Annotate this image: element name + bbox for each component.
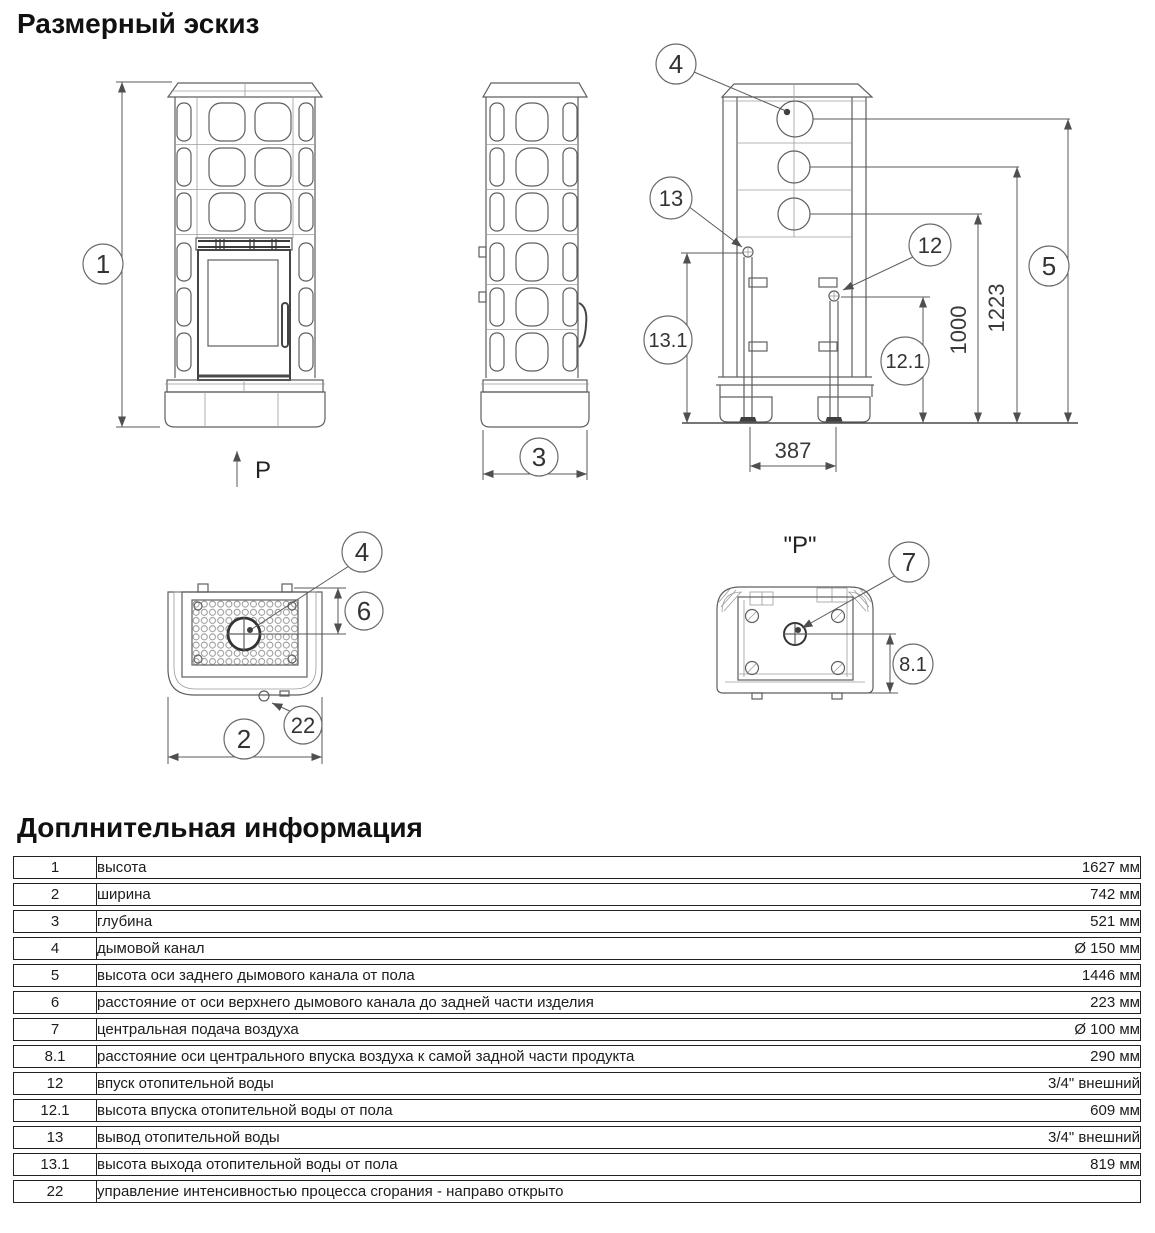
spec-desc: глубина bbox=[97, 910, 972, 933]
svg-text:7: 7 bbox=[902, 547, 916, 577]
table-row: 4дымовой каналØ 150 мм bbox=[13, 937, 1141, 960]
dim-depth: 3 bbox=[483, 430, 587, 480]
spec-value: 3/4" внешний bbox=[972, 1126, 1141, 1149]
side-tiles bbox=[490, 103, 577, 371]
spec-value: 609 мм bbox=[972, 1099, 1141, 1122]
balloon-7: 7 bbox=[889, 542, 929, 582]
balloon-22: 22 bbox=[284, 706, 322, 744]
table-row: 5высота оси заднего дымового канала от п… bbox=[13, 964, 1141, 987]
spec-value: 819 мм bbox=[972, 1153, 1141, 1176]
svg-text:4: 4 bbox=[669, 49, 683, 79]
svg-text:5: 5 bbox=[1042, 251, 1056, 281]
spec-value: 521 мм bbox=[972, 910, 1141, 933]
spec-desc: управление интенсивностью процесса сгора… bbox=[97, 1180, 972, 1203]
dim-5: 5 bbox=[1029, 119, 1069, 423]
table-row: 22управление интенсивностью процесса сго… bbox=[13, 1180, 1141, 1203]
spec-num: 12 bbox=[13, 1072, 97, 1095]
side-view: 3 bbox=[479, 83, 589, 480]
spec-num: 4 bbox=[13, 937, 97, 960]
balloon-12: 12 bbox=[909, 224, 951, 266]
spec-num: 7 bbox=[13, 1018, 97, 1041]
svg-text:22: 22 bbox=[291, 713, 315, 738]
dimensional-sketch: 1 P bbox=[0, 0, 1155, 800]
svg-text:2: 2 bbox=[237, 724, 251, 754]
door-glass bbox=[208, 260, 278, 346]
dim-8-1: 8.1 bbox=[807, 634, 933, 693]
svg-text:1223: 1223 bbox=[984, 284, 1009, 333]
table-row: 8.1расстояние оси центрального впуска во… bbox=[13, 1045, 1141, 1068]
spec-value: 290 мм bbox=[972, 1045, 1141, 1068]
balloon-1: 1 bbox=[83, 244, 123, 284]
balloon-8-1: 8.1 bbox=[893, 644, 933, 684]
table-row: 13вывод отопительной воды3/4" внешний bbox=[13, 1126, 1141, 1149]
svg-text:13: 13 bbox=[659, 186, 683, 211]
spec-desc: вывод отопительной воды bbox=[97, 1126, 972, 1149]
spec-num: 3 bbox=[13, 910, 97, 933]
door-handle bbox=[282, 303, 288, 347]
svg-text:12: 12 bbox=[918, 233, 942, 258]
dim-1223: 1223 bbox=[984, 167, 1017, 423]
wall-brackets bbox=[749, 278, 837, 351]
spec-desc: высота впуска отопительной воды от пола bbox=[97, 1099, 972, 1122]
spec-table: 1высота1627 мм 2ширина742 мм 3глубина521… bbox=[13, 852, 1141, 1207]
table-row: 13.1высота выхода отопительной воды от п… bbox=[13, 1153, 1141, 1176]
svg-text:1000: 1000 bbox=[946, 306, 971, 355]
spec-value: 3/4" внешний bbox=[972, 1072, 1141, 1095]
spec-num: 5 bbox=[13, 964, 97, 987]
balloon-12-1: 12.1 bbox=[881, 337, 929, 385]
spec-num: 6 bbox=[13, 991, 97, 1014]
spec-num: 1 bbox=[13, 856, 97, 879]
svg-text:12.1: 12.1 bbox=[886, 351, 925, 373]
balloon-5: 5 bbox=[1029, 246, 1069, 286]
central-air-inlet bbox=[783, 623, 807, 645]
stove-door bbox=[196, 238, 292, 380]
spec-value: 1446 мм bbox=[972, 964, 1141, 987]
table-row: 7центральная подача воздухаØ 100 мм bbox=[13, 1018, 1141, 1041]
balloon-4-rear: 4 bbox=[656, 44, 696, 84]
spec-desc: центральная подача воздуха bbox=[97, 1018, 972, 1041]
water-pipes bbox=[739, 257, 843, 423]
side-fitting-upper bbox=[479, 247, 486, 257]
water-outlet-fitting bbox=[742, 246, 754, 258]
spec-desc: расстояние оси центрального впуска возду… bbox=[97, 1045, 972, 1068]
balloon-13-1: 13.1 bbox=[644, 316, 692, 364]
info-title: Доплнительная информация bbox=[17, 812, 423, 844]
table-row: 6расстояние от оси верхнего дымового кан… bbox=[13, 991, 1141, 1014]
spec-value: 1627 мм bbox=[972, 856, 1141, 879]
balloon-6: 6 bbox=[345, 592, 383, 630]
svg-text:3: 3 bbox=[532, 442, 546, 472]
spec-num: 8.1 bbox=[13, 1045, 97, 1068]
spec-value: 742 мм bbox=[972, 883, 1141, 906]
dim-12-1: 12.1 bbox=[841, 297, 930, 423]
svg-text:13.1: 13.1 bbox=[649, 330, 688, 352]
spec-desc: расстояние от оси верхнего дымового кана… bbox=[97, 991, 972, 1014]
water-inlet-fitting bbox=[828, 290, 840, 302]
dim-height: 1 bbox=[83, 82, 172, 427]
balloon-13: 13 bbox=[650, 177, 692, 219]
balloon-3: 3 bbox=[520, 438, 558, 476]
front-view: 1 P bbox=[83, 82, 325, 487]
p-direction-arrow: P bbox=[237, 451, 271, 487]
spec-num: 22 bbox=[13, 1180, 97, 1203]
balloon-2: 2 bbox=[224, 719, 264, 759]
front-base bbox=[165, 380, 325, 427]
svg-text:4: 4 bbox=[355, 537, 369, 567]
table-row: 2ширина742 мм bbox=[13, 883, 1141, 906]
spec-desc: ширина bbox=[97, 883, 972, 906]
side-base bbox=[481, 380, 589, 427]
spec-desc: дымовой канал bbox=[97, 937, 972, 960]
top-view: 4 6 22 bbox=[168, 532, 383, 764]
svg-text:1: 1 bbox=[96, 249, 110, 279]
table-row: 3глубина521 мм bbox=[13, 910, 1141, 933]
spec-num: 2 bbox=[13, 883, 97, 906]
side-fitting-lower bbox=[479, 292, 486, 302]
svg-text:387: 387 bbox=[775, 438, 812, 463]
spec-num: 13.1 bbox=[13, 1153, 97, 1176]
balloon-4-top: 4 bbox=[342, 532, 382, 572]
rear-view: 4 13 12 bbox=[644, 44, 1078, 472]
table-row: 12впуск отопительной воды3/4" внешний bbox=[13, 1072, 1141, 1095]
spec-desc: высота выхода отопительной воды от пола bbox=[97, 1153, 972, 1176]
svg-text:6: 6 bbox=[357, 596, 371, 626]
dim-387: 387 bbox=[750, 427, 836, 472]
combustion-control-knob bbox=[259, 691, 289, 701]
spec-desc: высота bbox=[97, 856, 972, 879]
spec-num: 13 bbox=[13, 1126, 97, 1149]
spec-value: Ø 150 мм bbox=[972, 937, 1141, 960]
smoke-outlet-top bbox=[777, 101, 813, 137]
spec-desc: высота оси заднего дымового канала от по… bbox=[97, 964, 972, 987]
svg-text:8.1: 8.1 bbox=[899, 654, 927, 676]
spec-desc: впуск отопительной воды bbox=[97, 1072, 972, 1095]
p-view-label: "P" bbox=[783, 532, 816, 559]
p-arrow-label: P bbox=[255, 457, 271, 484]
table-row: 1высота1627 мм bbox=[13, 856, 1141, 879]
page: Размерный эскиз bbox=[0, 0, 1155, 1233]
p-view: "P" bbox=[717, 532, 933, 699]
rear-base bbox=[716, 377, 874, 422]
spec-value: 223 мм bbox=[972, 991, 1141, 1014]
spec-value: Ø 100 мм bbox=[972, 1018, 1141, 1041]
spec-num: 12.1 bbox=[13, 1099, 97, 1122]
table-row: 12.1высота впуска отопительной воды от п… bbox=[13, 1099, 1141, 1122]
spec-value bbox=[972, 1180, 1141, 1203]
side-door-handle bbox=[579, 303, 586, 347]
